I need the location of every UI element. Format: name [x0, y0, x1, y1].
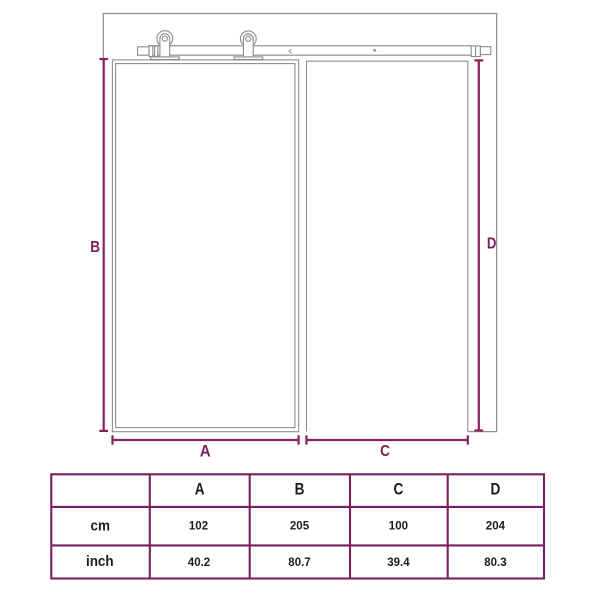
svg-text:C: C [380, 443, 390, 460]
svg-text:A: A [195, 480, 205, 499]
svg-text:39.4: 39.4 [387, 557, 410, 569]
svg-text:inch: inch [86, 554, 114, 571]
svg-text:204: 204 [486, 520, 506, 532]
svg-text:D: D [490, 480, 500, 499]
svg-text:B: B [295, 480, 305, 499]
svg-text:205: 205 [290, 520, 310, 532]
svg-text:40.2: 40.2 [188, 557, 210, 569]
svg-text:D: D [487, 236, 497, 253]
svg-text:cm: cm [91, 518, 110, 535]
svg-text:100: 100 [389, 520, 408, 532]
svg-text:80.3: 80.3 [484, 557, 506, 569]
svg-text:C: C [393, 480, 403, 499]
svg-text:A: A [200, 443, 211, 461]
svg-text:B: B [90, 239, 100, 256]
svg-text:102: 102 [189, 520, 208, 532]
svg-text:80.7: 80.7 [288, 557, 310, 569]
